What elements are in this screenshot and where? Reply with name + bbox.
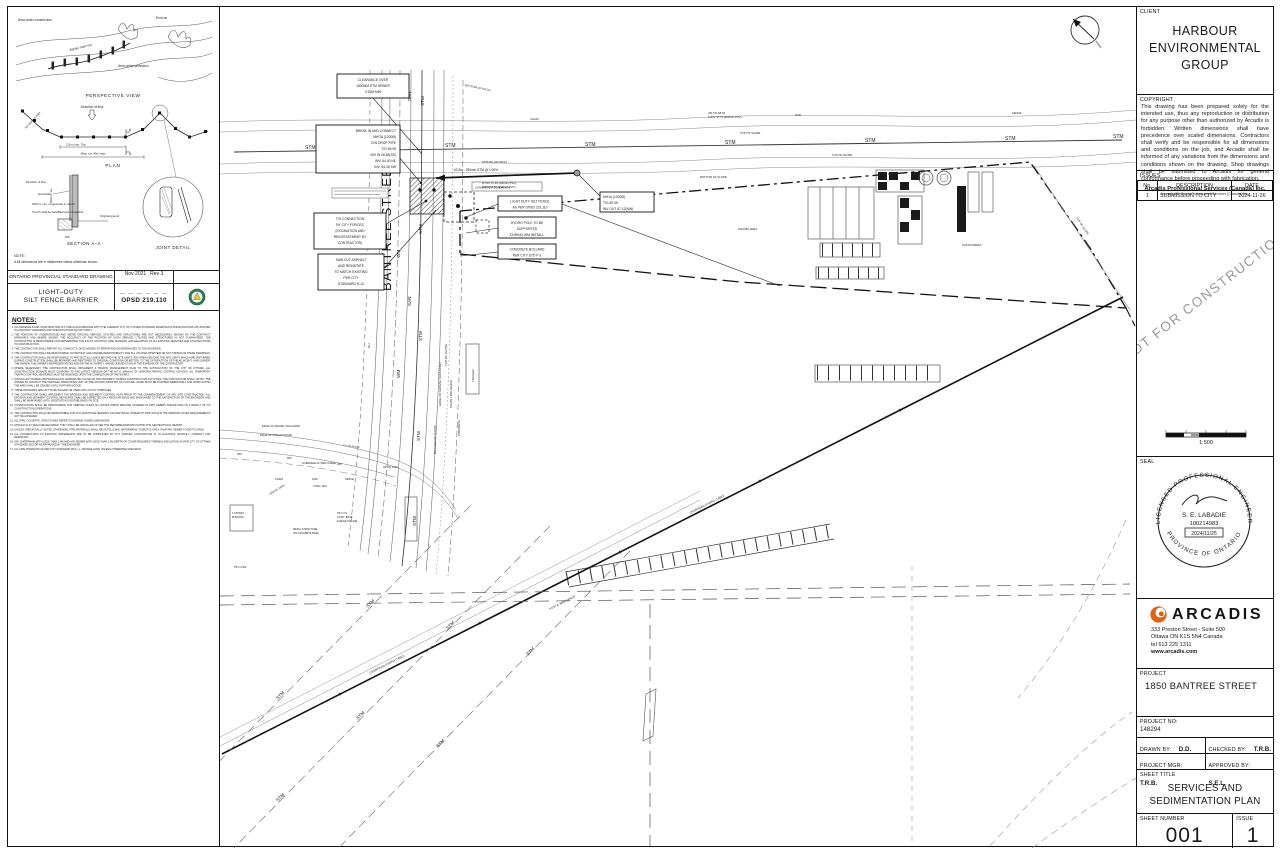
svg-text:INV: 64.40 NE: INV: 64.40 NE — [375, 159, 397, 163]
top-of-slope-label: TOP OF SLOPE — [832, 153, 853, 157]
stm-label: STM — [525, 646, 535, 657]
title-block: CLIENT HARBOUR ENVIRONMENTAL GROUP COPYR… — [1136, 6, 1274, 847]
gravel-area-label: GRAVEL AREA — [738, 227, 757, 231]
project-panel: PROJECT 1850 BANTREE STREET — [1137, 669, 1273, 717]
opsd-date: Nov 2021 — [125, 271, 146, 283]
storey-building-label: BUILDING — [232, 516, 244, 519]
drawn-by-label: DRAWN BY: — [1137, 745, 1171, 753]
callout-mh1a: MH1A (1200Ø) T/G 69.35 INV OUT 67.12(NW) — [579, 175, 654, 212]
issues-row: 1 SUBMISSION TO CITY 2024-11-26 — [1138, 191, 1273, 201]
opsd-header: ONTARIO PROVINCIAL STANDARD DRAWING — [8, 271, 115, 283]
svg-text:CONCRETE BOLLARD: CONCRETE BOLLARD — [510, 248, 545, 252]
oh-label: OH — [367, 344, 371, 349]
fig-label-perspective: PERSPECTIVE VIEW — [86, 93, 141, 98]
edge-gravel-label: EDGE OF GRAVEL SHOULDER — [262, 424, 300, 428]
opsd-number: OPSD 219.110 — [115, 297, 173, 304]
svg-text:T/S CONNECTION: T/S CONNECTION — [336, 217, 365, 221]
conc-blk-label: CONC. BLK — [313, 484, 327, 488]
stm-label: STM — [445, 143, 456, 149]
fig-label-area-protection: Area under protection — [118, 64, 149, 68]
fig-label-dim200: 200 — [65, 235, 70, 239]
seal-date: 2024/11/25 — [1191, 531, 1217, 537]
cl-road-label: C/L OF ROAD — [343, 443, 360, 449]
fig-label-end-run: End run — [156, 16, 167, 20]
wm-label: WM — [396, 370, 401, 378]
fig-label-section: SECTION A–A — [67, 241, 101, 246]
client-panel: CLIENT HARBOUR ENVIRONMENTAL GROUP — [1137, 7, 1273, 95]
svg-text:CLEARANCE OVER: CLEARANCE OVER — [358, 78, 389, 82]
issues-label: ISSUES — [1137, 171, 1273, 179]
metal-structure-label: ON CONCRETE BASE — [293, 532, 319, 535]
svg-text:SAW CUT ASPHALT: SAW CUT ASPHALT — [336, 258, 367, 262]
fig-label-joint: JOINT DETAIL — [156, 245, 191, 250]
issues-col-no: No. — [1138, 181, 1158, 191]
callout-bollard: CONCRETE BOLLARD PER CITY STD F-3 — [460, 244, 556, 259]
drawn-checked-row: DRAWN BY: D.D. CHECKED BY: T.R.B. — [1137, 738, 1273, 754]
note-item: THE CONTRACTOR SHALL BE RESPONSIBLE TO P… — [14, 357, 210, 366]
fence-link-label: LINK — [312, 477, 318, 481]
fig-label-trench: Trench shall be backfilled and compacted — [32, 210, 84, 214]
site-plan: STM STM STM STM STM STM STM CHAIN LINK F… — [220, 6, 1136, 853]
stm-label: STM — [435, 738, 445, 749]
note-item: THE CONTRACTOR SHALL BE RESPONSIBLE FOR … — [14, 412, 210, 418]
svg-text:INV IN 66.63(SE): INV IN 66.63(SE) — [371, 153, 396, 157]
svg-text:LIGHT DUTY SILT FENCE: LIGHT DUTY SILT FENCE — [510, 200, 550, 204]
svg-text:T/G 69.35: T/G 69.35 — [603, 201, 618, 205]
edge-asphalt-label: EDGE OF ASPHALT ROAD — [260, 433, 292, 437]
firm-website: www.arcadis.com — [1151, 649, 1273, 656]
seal-number: 100214983 — [1189, 521, 1218, 527]
storey-building-label: 1 STOREY — [232, 512, 245, 515]
arcadis-wordmark: ARCADIS — [1172, 606, 1263, 624]
trailer-label: TRAILER — [471, 368, 475, 382]
sheet-number-row: SHEET NUMBER 001 ISSUE 1 — [1137, 814, 1273, 848]
scale-ratio: 1:500 — [1199, 440, 1213, 445]
fig-label-main-run: Barrier main run — [69, 43, 92, 52]
fig-label-dim-end: 3m end run max — [24, 111, 42, 130]
seal-panel: SEAL LICENSED PROFESSIONAL ENGINEER PROV… — [1137, 457, 1273, 599]
note-item: ANY WATERMAIN WITH LESS THAN 2.4M AND AN… — [14, 441, 210, 447]
cb-inv-label: S INV 67.71 (200mm PVC) — [708, 115, 742, 119]
general-notes: ALL MATERIALS AND CONSTRUCTION IS TO BE … — [8, 326, 213, 506]
bottom-of-ditch-label: BOTTOM OF DITCH — [465, 83, 491, 92]
note-item: THE CONTRACTOR SHALL BE RESPONSIBLE TO P… — [14, 352, 210, 355]
wm-label: WM — [337, 462, 342, 466]
project-no-value: 148294 — [1137, 725, 1273, 733]
approved-by-label: APPROVED BY: — [1206, 761, 1251, 769]
note-item: SHOULD ANY BURIED ARCHAEOLOGICAL REMAINS… — [14, 378, 210, 387]
overhead-hydro-label: OVERHEAD HYDRO CABLE — [689, 494, 726, 515]
note-item: THESE DRAWINGS ARE NOT TO BE SCALED OR U… — [14, 389, 210, 392]
opsd-title-line2: SILT FENCE BARRIER — [8, 297, 114, 305]
fence-fence-label: FENCE — [1012, 111, 1022, 115]
svg-text:BREAK IN AND CONNECT: BREAK IN AND CONNECT — [356, 129, 396, 133]
svg-text:REINSTATEMENT BY: REINSTATEMENT BY — [334, 235, 367, 239]
engineer-seal-stamp: LICENSED PROFESSIONAL ENGINEER PROVINCE … — [1137, 465, 1271, 589]
copyright-panel: COPYRIGHT This drawing has been prepared… — [1137, 95, 1273, 171]
client-label: CLIENT — [1137, 7, 1273, 15]
note-item: THE POSITION OF UNDERGROUND AND ABOVE GR… — [14, 334, 210, 347]
svg-text:AND REINSTATE: AND REINSTATE — [338, 264, 365, 268]
scale-bar: 1:500 — [1161, 429, 1251, 450]
fig-label-dim25: 2.5m max. Typ — [66, 143, 86, 147]
arcadis-logo-icon — [1149, 605, 1168, 624]
fig-note-h: NOTE: — [14, 254, 25, 258]
firm-address: 333 Preston Street - Suite 500 Ottawa ON… — [1137, 627, 1273, 657]
wm-label: WM — [287, 456, 292, 460]
seal-name: S. E. LABADIE — [1182, 512, 1227, 519]
project-mgr-label: PROJECT MGR: — [1137, 761, 1182, 769]
fence-chain-label: CHAIN — [275, 477, 283, 481]
fence-link-label: LINK — [795, 113, 801, 117]
fig-label-plan: PLAN — [105, 163, 120, 168]
svg-text:1500MM STM SEWER: 1500MM STM SEWER — [356, 84, 390, 88]
concrete-label: CONCRETE — [457, 420, 461, 436]
note-item: THE CONTRACTOR SHALL IMPLEMENT THE EROSI… — [14, 393, 210, 402]
stm-grade-label: 63.3m - 250mm STM @ 1.00% — [454, 168, 498, 172]
fig-note-a: A All dimensions are in millimetres unle… — [14, 260, 98, 264]
overhead-hydro-label: OVERHEAD HYDRO CABLE — [302, 461, 336, 465]
svg-text:STANDARD R-10: STANDARD R-10 — [338, 282, 364, 286]
svg-text:INV OUT 67.12(NW): INV OUT 67.12(NW) — [603, 207, 633, 211]
issues-panel: ISSUES No. DESCRIPTION DATE 1 SUBMISSION… — [1137, 171, 1273, 457]
svg-text:SUPPORTED: SUPPORTED — [517, 227, 538, 231]
notes-heading: NOTES: — [12, 317, 219, 324]
svg-text:C/W DROP PIPE: C/W DROP PIPE — [371, 141, 397, 145]
svg-text:HYDRO POLE TO BE: HYDRO POLE TO BE — [511, 221, 544, 225]
opsd-logo-icon — [188, 288, 206, 306]
svg-text:PER CITY: PER CITY — [343, 276, 359, 280]
site-plan-svg: STM STM STM STM STM STM STM CHAIN LINK F… — [220, 6, 1136, 848]
note-item: UNLESS SPECIFICALLY NOTED OTHERWISE, PIP… — [14, 428, 210, 431]
note-item: CONTRACTORS SHALL BE RESPONSIBLE FOR KEE… — [14, 404, 210, 410]
svg-text:MH1A (1200Ø): MH1A (1200Ø) — [603, 195, 625, 199]
top-of-slope-label: TOP OF SLOPE — [444, 344, 448, 366]
svg-text:BY CITY FORCES: BY CITY FORCES — [336, 223, 364, 227]
note-item: ALL CONNECTIONS TO EXISTING WATERMAINS A… — [14, 433, 210, 439]
svg-text:T/G 69.05: T/G 69.05 — [381, 147, 396, 151]
checked-by-value: T.R.B. — [1251, 745, 1271, 753]
project-no-panel: PROJECT NO: 148294 — [1137, 717, 1273, 738]
note-item: WHERE NECESSARY, THE CONTRACTOR SHALL IM… — [14, 367, 210, 376]
drawing-sheet: { "colors":{"line":"#1a1a1a","faint":"#7… — [0, 0, 1280, 854]
containers-label: CONTAINERS — [962, 243, 981, 247]
sheet-title-panel: SHEET TITLE SERVICES AND SEDIMENTATION P… — [1137, 770, 1273, 814]
svg-text:MHOA (1200Ø): MHOA (1200Ø) — [373, 135, 396, 139]
svg-text:A: A — [129, 152, 132, 156]
concrete-foundation-label: CONCRETE FOUNDATION — [475, 186, 510, 190]
hp03-label: E EDGE ON LINE — [337, 520, 357, 523]
bottom-of-slope-label: BOTTOM OF SLOPE — [700, 175, 727, 179]
opsd-figure: Area under construction End run Barrier … — [8, 7, 219, 265]
fig-label-dim600: 600mm min — [49, 188, 53, 203]
fig-label-dirflow2: Direction of flow — [26, 180, 47, 184]
stm-label: STM — [305, 145, 316, 151]
issue-label: ISSUE — [1233, 814, 1273, 822]
north-arrow-icon — [1071, 16, 1101, 48]
note-item: ALL PIPE, CULVERTS, STRUCTURES REFER TO … — [14, 419, 210, 422]
note-item: THE CONTRACTOR SHALL REPORT ALL CONFLICT… — [14, 348, 210, 351]
stm-label: STM — [418, 331, 423, 341]
drawn-by-value: D.D. — [1176, 745, 1191, 753]
top-of-slope-label: TOP OF SLOPE — [740, 131, 761, 135]
svg-text:0.25M MIN: 0.25M MIN — [365, 90, 382, 94]
svg-text:(EXCAVATION AND: (EXCAVATION AND — [335, 229, 365, 233]
issues-col-date: DATE — [1232, 181, 1273, 191]
post-wire-fence-label: POST & WIRE FENCE — [549, 594, 576, 611]
svg-text:INV: 64.40 SW: INV: 64.40 SW — [374, 165, 397, 169]
project-no-label: PROJECT NO: — [1137, 717, 1273, 725]
sheet-title-label: SHEET TITLE — [1137, 770, 1273, 778]
checked-by-label: CHECKED BY: — [1206, 745, 1247, 753]
fig-label-dim-main: Main run 40m max — [81, 152, 106, 156]
project-label: PROJECT — [1137, 669, 1273, 677]
stm-label: STM — [1005, 136, 1016, 142]
stm-label: STM — [412, 516, 417, 526]
gravel-area-label: GRAVEL AREA — [268, 483, 286, 496]
mgr-approved-row: PROJECT MGR: T.R.B. APPROVED BY: S.E.L. — [1137, 754, 1273, 770]
callout-hydro-pole: HYDRO POLE TO BE SUPPORTED DURING WM INS… — [466, 217, 556, 238]
not-for-construction-watermark: NOT FOR CONSTRUCTION — [1137, 226, 1273, 367]
hp-on-line-label: HP ON LINE — [383, 465, 398, 469]
note-item: ALL FIRE HYDRANTS AS PER CITY STANDARD W… — [14, 448, 210, 451]
svg-text:AS PER OPSD 219.110: AS PER OPSD 219.110 — [513, 206, 548, 210]
svg-text:A: A — [129, 128, 132, 132]
metal-structure-label: METAL STRUCTURE — [293, 528, 318, 531]
issues-table: No. DESCRIPTION DATE 1 SUBMISSION TO CIT… — [1137, 180, 1273, 201]
sheet-number-label: SHEET NUMBER — [1137, 814, 1232, 822]
opsd-rev: Rev 3 — [150, 271, 163, 283]
stm-label: STM — [416, 431, 421, 441]
mh-lid-label: STM MH LID=69.04 — [482, 160, 507, 164]
hp24-label: HP 2.4 SW — [234, 566, 247, 569]
issue-value: 1 — [1233, 824, 1273, 848]
opsd-title-block: ONTARIO PROVINCIAL STANDARD DRAWING Nov … — [8, 270, 219, 311]
copyright-label: COPYRIGHT — [1137, 95, 1273, 103]
note-item: ALL MATERIALS AND CONSTRUCTION IS TO BE … — [14, 326, 210, 332]
top-of-slope-label: TOP OF SLOPE — [1075, 216, 1090, 235]
stm-label: STM — [865, 138, 876, 144]
opsd-detail-panel: Area under construction End run Barrier … — [8, 7, 219, 846]
fence-fence-label: FENCE — [345, 477, 354, 481]
stm-label: STM — [445, 620, 455, 631]
fig-label-orig-ground: Original ground — [100, 214, 120, 218]
project-name: 1850 BANTREE STREET — [1137, 677, 1273, 691]
stm-label: STM — [725, 140, 736, 146]
issues-col-desc: DESCRIPTION — [1158, 181, 1232, 191]
note-item: SHOULD CLAY SEALS BE REQUIRED, THEY SHAL… — [14, 424, 210, 427]
fig-label-dir-flow: Direction of flow — [81, 105, 104, 109]
svg-text:DURING WM INSTALL: DURING WM INSTALL — [510, 233, 544, 237]
hp03-label: HP 0.3 S — [337, 512, 347, 515]
edge-gravel-label: EDGE OF GRAVEL SHOULDER — [438, 361, 442, 406]
san-label: SAN — [407, 297, 412, 306]
stm-label: STM — [420, 96, 425, 106]
opsd-title-line1: LIGHT–DUTY — [8, 289, 114, 297]
svg-text:CONTRACTOR): CONTRACTOR) — [338, 241, 362, 245]
fig-label-area-construction: Area under construction — [18, 18, 52, 22]
fig-label-geo-trench: 300mm min. of geotextile in trench — [32, 202, 75, 206]
stm-label: STM — [1113, 134, 1124, 140]
seal-label: SEAL — [1137, 457, 1273, 465]
svg-text:PER CITY STD F-3: PER CITY STD F-3 — [513, 254, 542, 258]
chain-link-fence-label: CHAIN LINK FENCE — [449, 380, 453, 408]
wm-label: WM — [237, 452, 242, 456]
fence-chain-label: CHAIN — [530, 117, 539, 121]
firm-panel: ARCADIS 333 Preston Street - Suite 500 O… — [1137, 599, 1273, 669]
svg-text:TO MATCH EXISTING: TO MATCH EXISTING — [334, 270, 368, 274]
sheet-title: SERVICES AND SEDIMENTATION PLAN — [1137, 783, 1273, 808]
bottom-of-slope-label: BOTTOM OF SLOPE — [433, 425, 437, 454]
sheet-number-value: 001 — [1137, 824, 1232, 848]
client-name: HARBOUR ENVIRONMENTAL GROUP — [1137, 23, 1273, 74]
stm-label: STM — [585, 142, 596, 148]
hp03-label: CONC. BASE — [337, 516, 353, 519]
